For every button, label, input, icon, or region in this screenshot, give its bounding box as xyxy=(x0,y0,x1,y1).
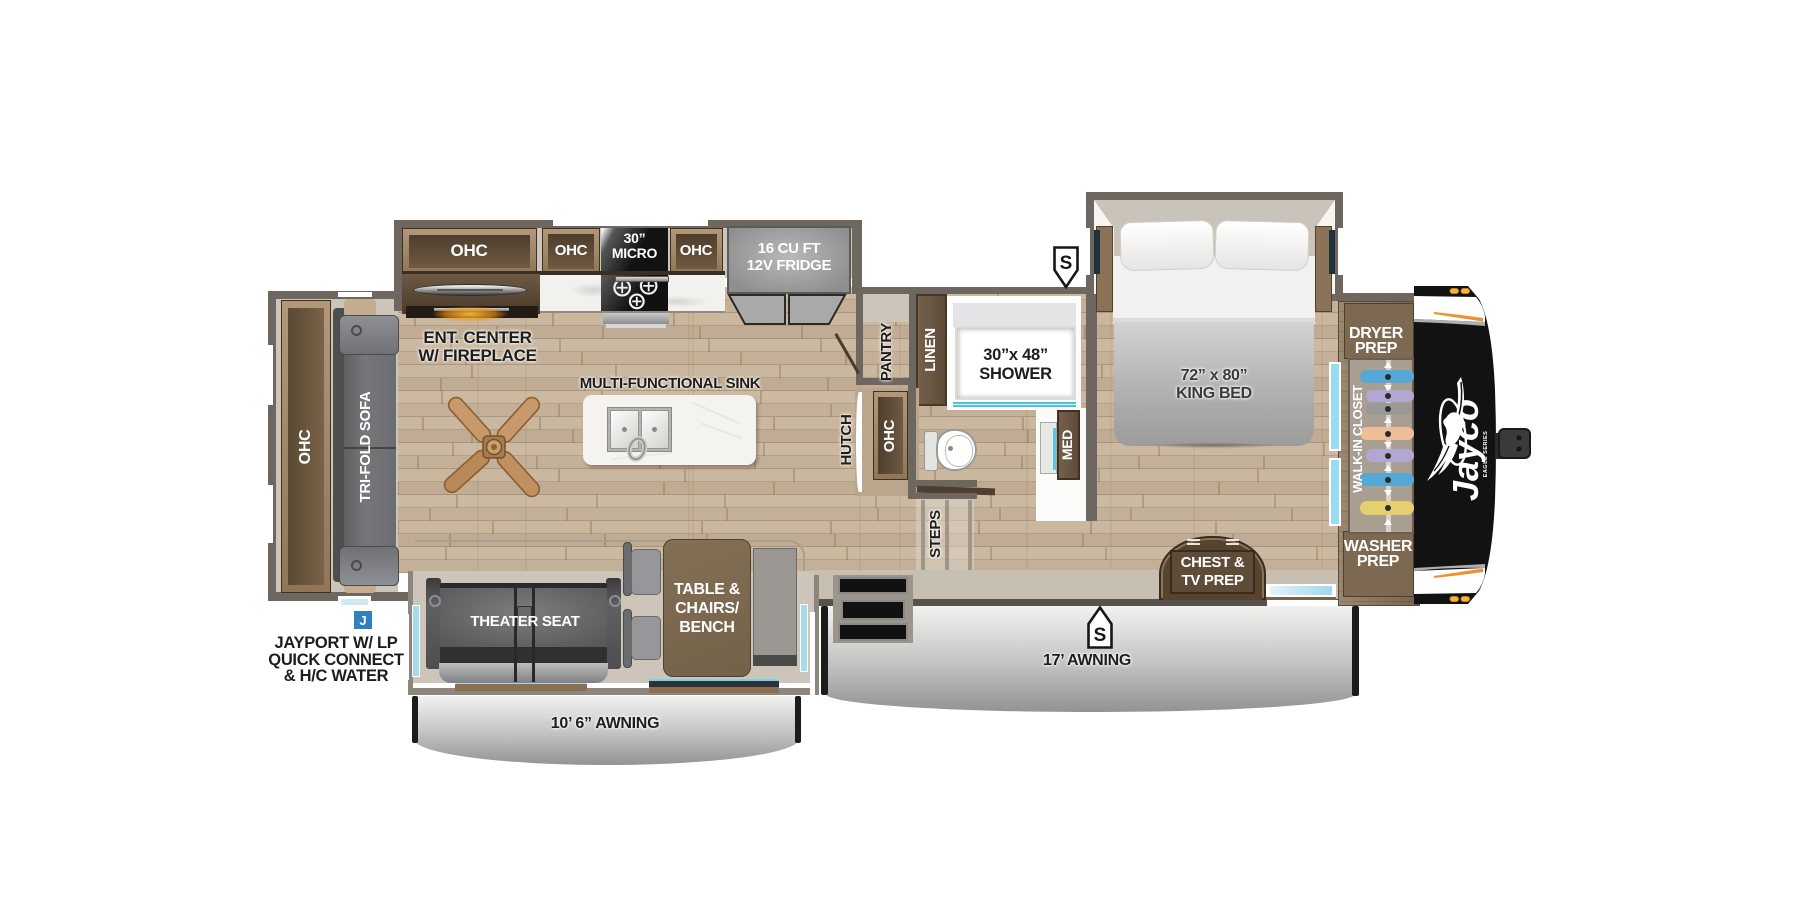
svg-text:S: S xyxy=(1060,253,1073,274)
svg-text:S: S xyxy=(1094,625,1107,646)
svg-text:EAGLE SERIES: EAGLE SERIES xyxy=(1483,431,1489,478)
